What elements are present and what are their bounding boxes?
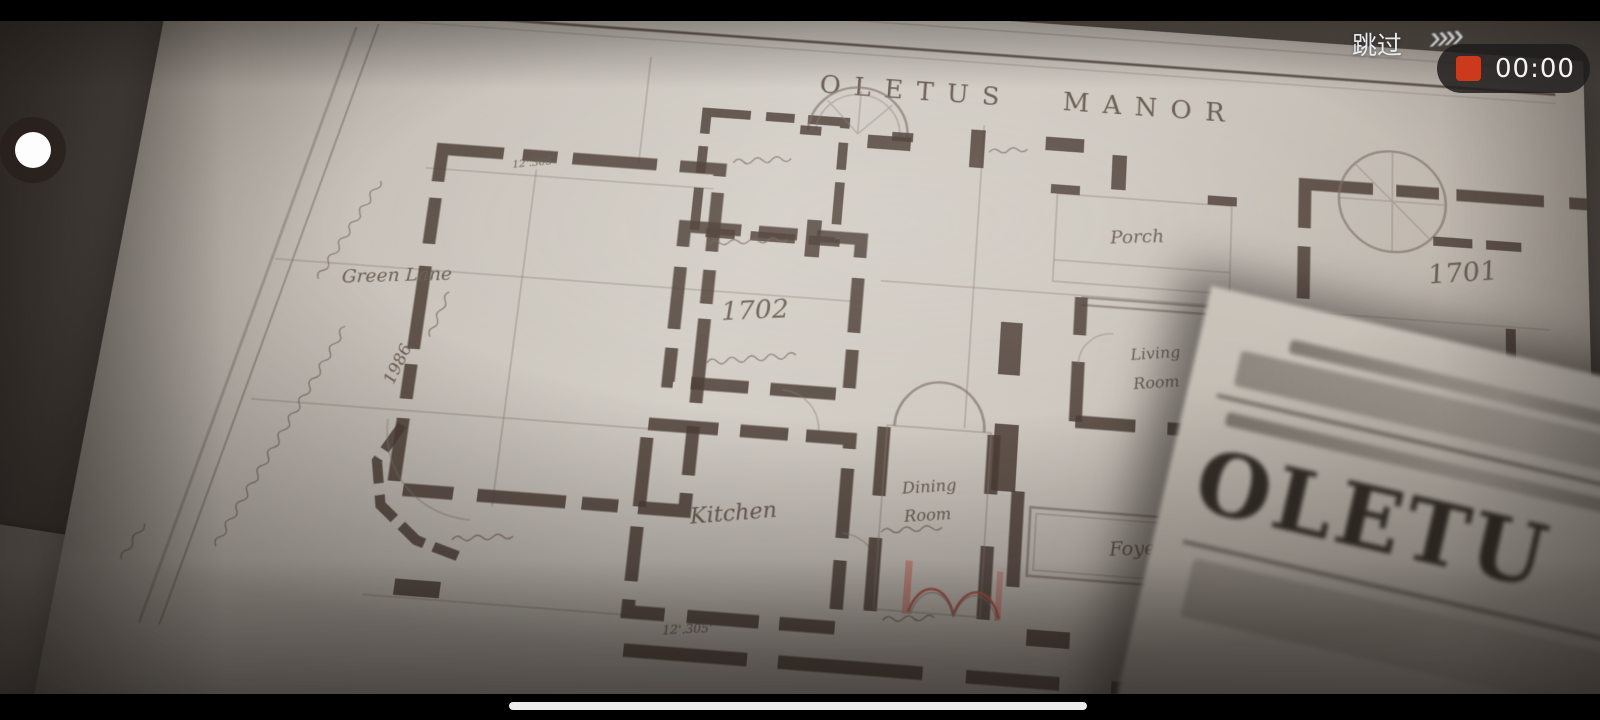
floating-assistive-button[interactable] bbox=[15, 132, 51, 168]
skip-label: 跳过 bbox=[1352, 26, 1402, 62]
phone-screen: OLETUS MANOR bbox=[0, 0, 1600, 720]
room-label-1701: 1701 bbox=[1426, 256, 1500, 290]
margin-handwriting bbox=[118, 166, 383, 575]
cinematic-video-frame: OLETUS MANOR bbox=[0, 21, 1600, 695]
record-stop-icon bbox=[1456, 56, 1481, 81]
screen-recorder-pill[interactable]: 00:00 bbox=[1437, 44, 1590, 93]
room-label-kitchen: Kitchen bbox=[688, 496, 778, 529]
room-label-living-1: Living bbox=[1129, 343, 1182, 364]
room-label-dining-1: Dining bbox=[900, 476, 957, 498]
room-label-1702: 1702 bbox=[721, 295, 790, 327]
recorder-time: 00:00 bbox=[1495, 54, 1575, 84]
top-letterbox bbox=[0, 0, 1600, 21]
dimension-top-left: 12'.305' bbox=[512, 155, 555, 170]
room-label-living-2: Room bbox=[1131, 372, 1180, 393]
bottom-letterbox bbox=[0, 694, 1600, 720]
blueprint-title: OLETUS MANOR bbox=[818, 72, 1238, 130]
kitchen-walls bbox=[628, 424, 888, 631]
kitchen-dimension: 12'.305' bbox=[662, 620, 712, 637]
room-label-green-lane: Green Lane bbox=[341, 264, 452, 287]
dining-room-walls bbox=[870, 378, 997, 619]
home-indicator-bar[interactable] bbox=[509, 702, 1087, 710]
room-label-porch: Porch bbox=[1109, 227, 1165, 249]
room-label-dining-2: Room bbox=[902, 504, 951, 526]
